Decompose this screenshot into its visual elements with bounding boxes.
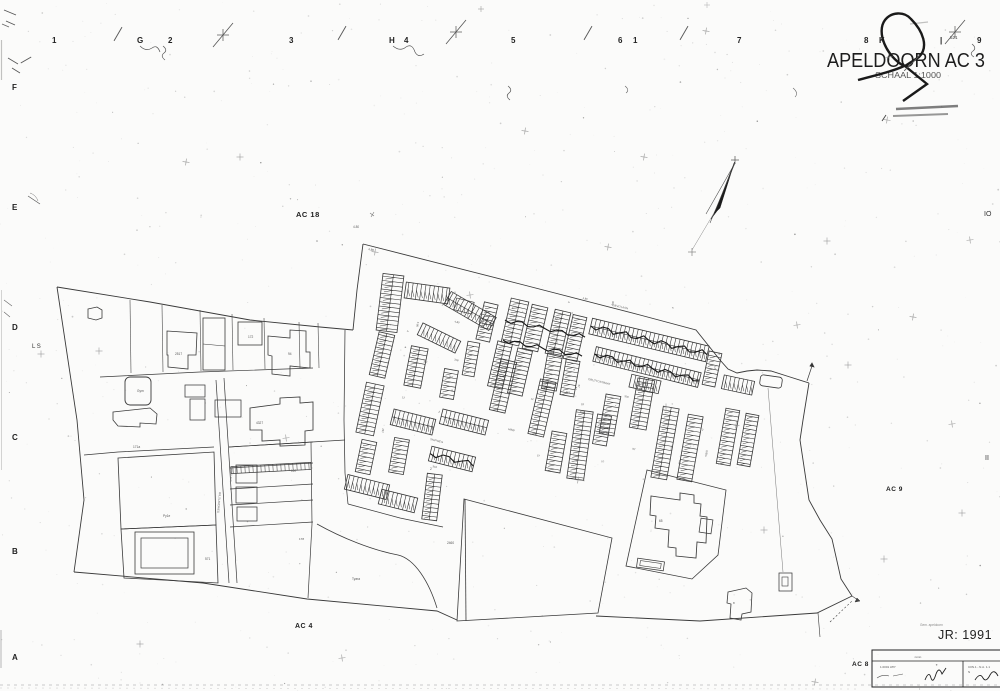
svg-text:2: 2 xyxy=(168,36,173,45)
svg-text:8: 8 xyxy=(864,36,869,45)
svg-text:178: 178 xyxy=(299,537,304,541)
svg-text:171a: 171a xyxy=(133,445,140,449)
svg-text:WEG: WEG xyxy=(704,450,709,457)
svg-text:A: A xyxy=(12,653,18,662)
svg-text:N: N xyxy=(968,670,970,674)
svg-text:257: 257 xyxy=(381,428,386,434)
svg-text:318: 318 xyxy=(432,464,438,469)
svg-text:2517: 2517 xyxy=(175,352,182,356)
svg-text:4.80: 4.80 xyxy=(454,319,460,324)
svg-text:|: | xyxy=(940,36,942,45)
svg-text:57: 57 xyxy=(581,402,585,407)
svg-text:157: 157 xyxy=(291,469,297,473)
svg-text:4: 4 xyxy=(567,301,571,304)
svg-text:IO: IO xyxy=(984,211,992,218)
svg-text:318: 318 xyxy=(624,394,630,399)
svg-text:2: 2 xyxy=(702,427,705,431)
svg-text:HRW: HRW xyxy=(508,427,516,432)
svg-text:12: 12 xyxy=(530,397,534,402)
svg-text:L S: L S xyxy=(32,344,41,350)
svg-text:C0N.1 - N.A. 1.1: C0N.1 - N.A. 1.1 xyxy=(968,665,990,669)
svg-text:2460: 2460 xyxy=(447,541,454,545)
svg-text:4.80: 4.80 xyxy=(415,322,420,328)
svg-text:1.0001 ATP: 1.0001 ATP xyxy=(880,665,895,669)
svg-text:3: 3 xyxy=(289,36,294,45)
svg-text:AC 4: AC 4 xyxy=(295,623,313,630)
svg-text:257: 257 xyxy=(448,374,454,379)
svg-text:65: 65 xyxy=(659,519,663,523)
svg-text:AC 9: AC 9 xyxy=(886,486,903,493)
svg-text:521: 521 xyxy=(950,35,958,40)
svg-text:7: 7 xyxy=(737,36,742,45)
svg-text:1: 1 xyxy=(633,36,638,45)
svg-text:5: 5 xyxy=(511,36,516,45)
svg-text:571: 571 xyxy=(205,557,211,561)
svg-text:8: 8 xyxy=(733,601,735,605)
svg-text:nnnn: nnnn xyxy=(915,655,922,659)
svg-text:D: D xyxy=(12,323,18,332)
svg-text:4: 4 xyxy=(404,36,409,45)
svg-text:94: 94 xyxy=(288,352,292,356)
svg-text:AC 8: AC 8 xyxy=(852,661,869,668)
svg-text:4: 4 xyxy=(671,307,675,310)
svg-text:Py1e: Py1e xyxy=(163,514,170,518)
svg-text:Gym: Gym xyxy=(137,389,144,393)
svg-text:JR: 1991: JR: 1991 xyxy=(938,628,992,642)
svg-text:4: 4 xyxy=(406,330,410,333)
svg-text:57: 57 xyxy=(632,447,636,452)
svg-text:57: 57 xyxy=(466,316,471,320)
svg-text:301: 301 xyxy=(669,445,674,451)
svg-text:12: 12 xyxy=(402,395,406,400)
svg-text:1: 1 xyxy=(52,36,57,45)
svg-text:E: E xyxy=(12,203,18,212)
svg-text:GRUTTOSTRAAT: GRUTTOSTRAAT xyxy=(588,377,611,386)
svg-text:II: II xyxy=(985,455,989,462)
svg-text:301: 301 xyxy=(423,359,429,364)
svg-text:4.80: 4.80 xyxy=(368,247,375,252)
svg-text:AC 18: AC 18 xyxy=(296,210,320,219)
svg-text:57: 57 xyxy=(537,453,541,458)
svg-text:K: K xyxy=(879,36,885,45)
svg-text:G: G xyxy=(137,36,143,45)
svg-text:2: 2 xyxy=(438,410,441,414)
svg-text:B: B xyxy=(12,547,18,556)
svg-text:C: C xyxy=(12,433,18,442)
svg-text:172: 172 xyxy=(248,335,254,339)
svg-text:257: 257 xyxy=(565,390,571,395)
svg-text:4.80: 4.80 xyxy=(353,225,359,229)
svg-text:SNIPWEG: SNIPWEG xyxy=(430,437,444,444)
svg-text:WILSLANDWEG: WILSLANDWEG xyxy=(216,492,222,513)
svg-text:9: 9 xyxy=(977,36,982,45)
svg-text:6: 6 xyxy=(618,36,623,45)
svg-text:H: H xyxy=(389,36,395,45)
svg-text:57: 57 xyxy=(601,459,605,464)
svg-text:F: F xyxy=(12,83,17,92)
svg-text:Gem. apeldoorn: Gem. apeldoorn xyxy=(920,623,943,627)
svg-text:318: 318 xyxy=(454,357,460,362)
svg-text:4327: 4327 xyxy=(256,421,263,425)
svg-text:Tyara: Tyara xyxy=(352,577,360,581)
